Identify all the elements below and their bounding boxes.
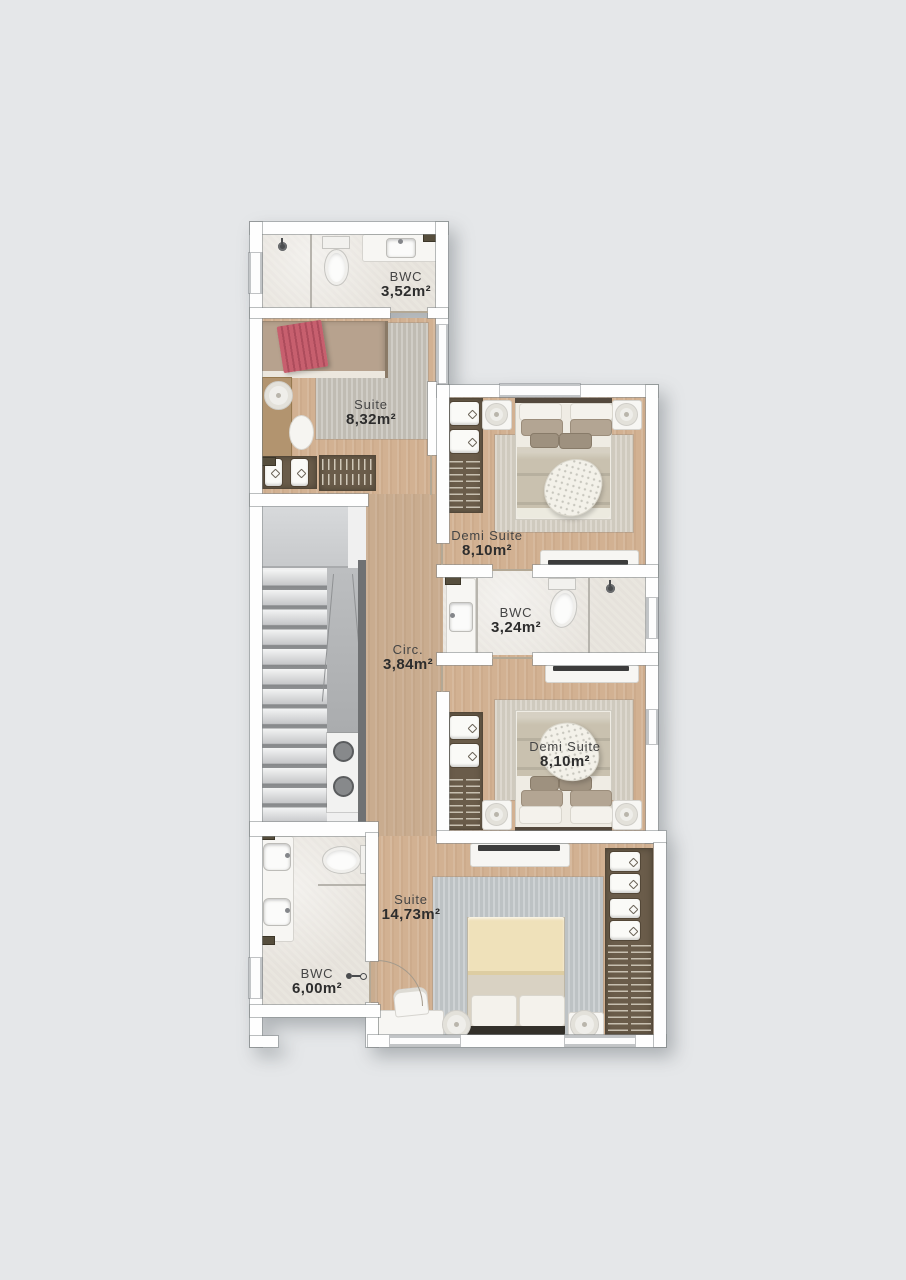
room-area: 3,84m²: [383, 657, 433, 673]
towel: [450, 430, 479, 453]
towel: [610, 874, 640, 893]
door: [390, 311, 428, 313]
tv: [478, 845, 560, 851]
door: [441, 544, 443, 565]
room-label-bwc-top: BWC 3,52m²: [381, 270, 431, 300]
door: [430, 455, 432, 495]
room-label-demi-suite-2: Demi Suite 8,10m²: [529, 740, 601, 770]
towel: [450, 402, 479, 425]
window: [437, 325, 448, 383]
wall: [437, 385, 449, 543]
wall: [437, 565, 492, 577]
towel: [450, 744, 479, 767]
faucet: [398, 239, 403, 244]
faucet: [285, 853, 290, 858]
door: [441, 666, 443, 692]
wall: [437, 692, 449, 831]
shower-head-icon: [604, 580, 618, 594]
table-lamp: [615, 403, 638, 426]
hanger-rail: [322, 459, 373, 470]
room-label-suite-1: Suite 8,32m²: [346, 398, 396, 428]
wall: [437, 831, 666, 843]
fixture-tag: [262, 458, 275, 465]
room-area: 3,52m²: [381, 284, 431, 300]
room-label-bwc-middle: BWC 3,24m²: [491, 606, 541, 636]
room-label-bwc-bottom: BWC 6,00m²: [292, 967, 342, 997]
table-lamp: [485, 803, 508, 826]
wall: [250, 1005, 380, 1017]
pillow: [471, 995, 517, 1027]
faucet: [285, 908, 290, 913]
room-area: 8,10m²: [529, 754, 601, 770]
room-name: BWC: [292, 967, 342, 981]
wall: [654, 843, 666, 1047]
hanger-rail: [449, 775, 463, 826]
table-lamp: [615, 803, 638, 826]
towel: [291, 459, 308, 486]
hanger-rail: [322, 474, 373, 485]
room-name: Demi Suite: [529, 740, 601, 754]
window: [647, 710, 658, 744]
wall: [428, 308, 448, 318]
door: [369, 962, 371, 1003]
towel: [610, 921, 640, 940]
room-area: 14,73m²: [382, 907, 441, 923]
door-handle-icon: [346, 970, 366, 980]
pillow: [519, 806, 562, 824]
room-label-circulation: Circ. 3,84m²: [383, 643, 433, 673]
wall: [437, 653, 492, 665]
wall: [533, 565, 658, 577]
fixture-tag: [446, 577, 460, 584]
pillow: [570, 806, 613, 824]
shower-partition: [588, 578, 590, 654]
room-area: 8,32m²: [346, 412, 396, 428]
wall: [366, 833, 378, 961]
cushion: [559, 433, 592, 449]
room-name: BWC: [381, 270, 431, 284]
bed-headboard: [385, 321, 388, 378]
window: [500, 384, 580, 397]
table-lamp: [485, 403, 508, 426]
room-name: BWC: [491, 606, 541, 620]
stair-landing: [262, 504, 348, 568]
door: [492, 569, 533, 571]
pillow: [521, 790, 563, 807]
room-label-suite-2: Suite 14,73m²: [382, 893, 441, 923]
round-side-table: [264, 381, 293, 410]
stair-spot: [333, 741, 354, 762]
faucet: [450, 613, 455, 618]
wall: [250, 222, 448, 234]
stair-spot: [333, 776, 354, 797]
hanger-rail: [466, 460, 480, 508]
window: [565, 1036, 635, 1046]
pouf: [289, 415, 314, 450]
shower-head-icon: [276, 238, 290, 252]
cushion: [530, 776, 559, 791]
towel: [610, 899, 640, 918]
toilet-tank: [322, 236, 350, 249]
tv: [553, 666, 629, 671]
towel: [450, 716, 479, 739]
wall: [250, 1036, 278, 1047]
cushion: [530, 433, 559, 448]
window: [249, 958, 262, 998]
hanger-rail: [608, 943, 628, 1031]
pillow: [570, 790, 612, 807]
door: [492, 657, 533, 659]
room-area: 6,00m²: [292, 981, 342, 997]
partition: [476, 578, 478, 654]
hanger-rail: [449, 460, 463, 508]
room-area: 3,24m²: [491, 620, 541, 636]
toilet: [322, 846, 361, 874]
toilet: [324, 249, 349, 286]
wall: [250, 222, 262, 1047]
pillow: [519, 995, 565, 1027]
staircase-treads: [262, 570, 327, 827]
floor-plan-page: BWC 3,52m² Suite 8,32m² Demi Suite 8,10m…: [0, 0, 906, 1280]
wall: [250, 308, 390, 318]
window: [647, 598, 658, 638]
room-area: 8,10m²: [451, 543, 523, 559]
room-label-demi-suite-1: Demi Suite 8,10m²: [451, 529, 523, 559]
wall: [250, 494, 368, 506]
room-name: Suite: [346, 398, 396, 412]
room-name: Suite: [382, 893, 441, 907]
room-name: Circ.: [383, 643, 433, 657]
toilet-tank: [548, 578, 576, 590]
wall: [250, 822, 378, 836]
towel: [610, 852, 640, 871]
bed-blanket-cream: [468, 917, 564, 975]
window: [249, 253, 262, 293]
pink-throw-blanket: [277, 320, 329, 373]
hanger-rail: [631, 943, 651, 1031]
room-name: Demi Suite: [451, 529, 523, 543]
shower-partition: [310, 234, 312, 308]
window: [390, 1036, 460, 1046]
floor-plan: BWC 3,52m² Suite 8,32m² Demi Suite 8,10m…: [0, 0, 906, 1280]
stair-rail: [358, 560, 366, 827]
hanger-rail: [466, 775, 480, 826]
wall: [533, 653, 658, 665]
